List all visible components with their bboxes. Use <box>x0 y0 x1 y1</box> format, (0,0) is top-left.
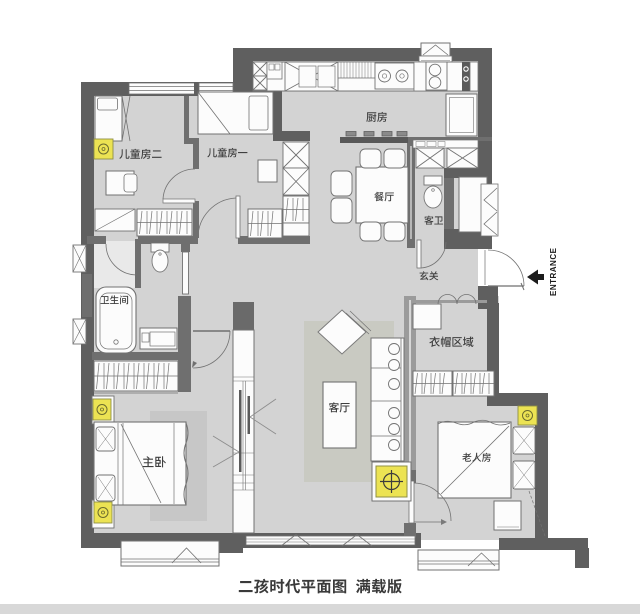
svg-text:ENTRANCE: ENTRANCE <box>549 247 558 296</box>
